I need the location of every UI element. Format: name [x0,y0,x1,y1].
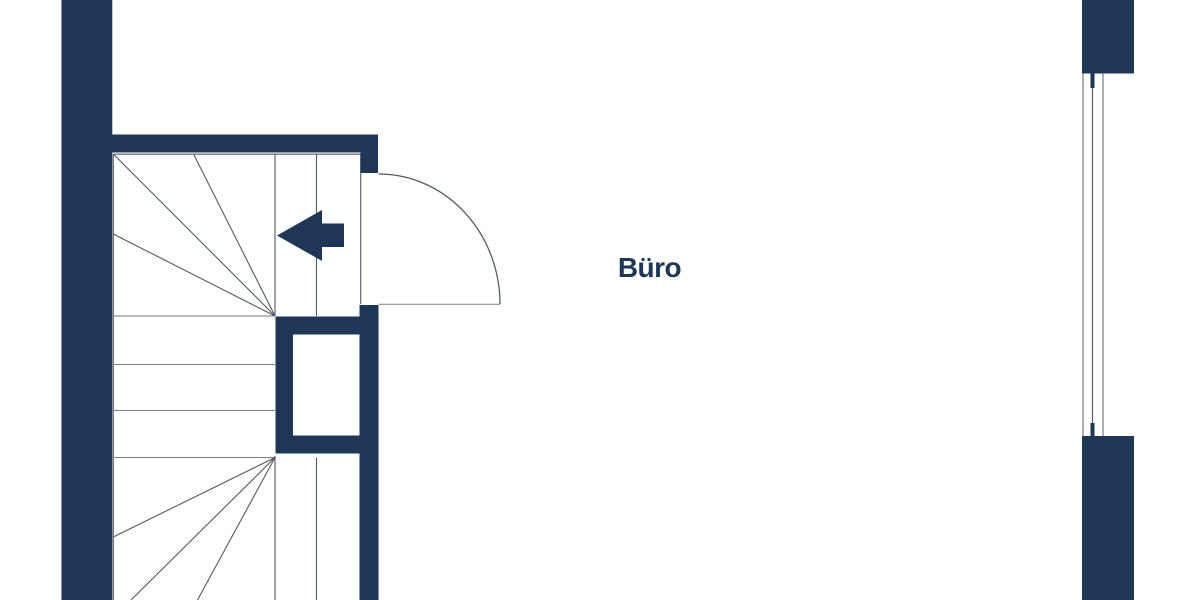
svg-text:Büro: Büro [618,252,682,283]
